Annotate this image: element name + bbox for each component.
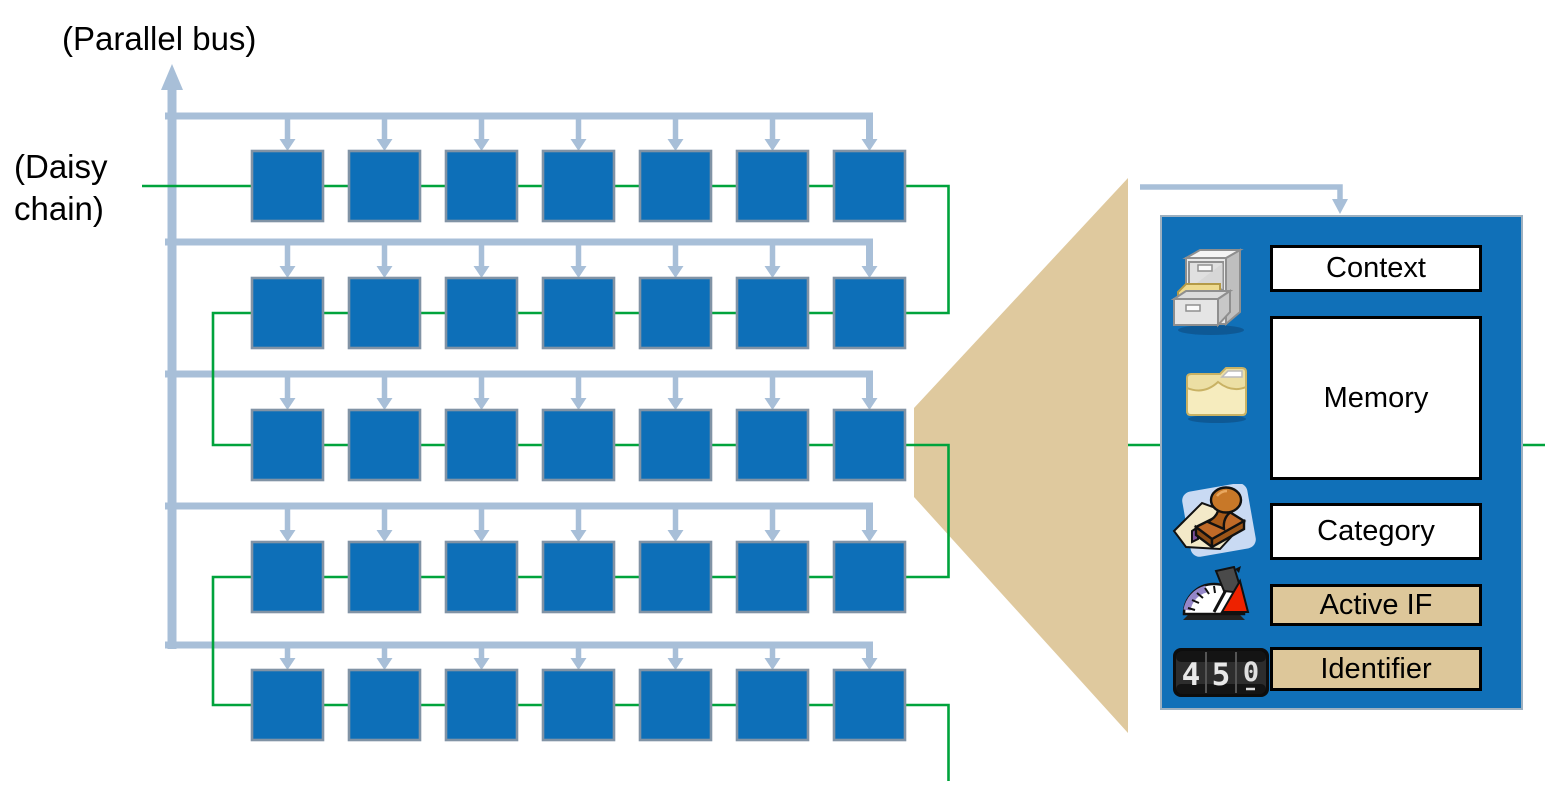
bus-rail	[165, 645, 870, 659]
bus-arrowhead	[862, 266, 878, 278]
node-detail-panel: 4 5 0 Context Memory Category Active IF …	[1160, 215, 1523, 710]
node-square	[543, 670, 614, 740]
node-square	[349, 151, 420, 221]
counter-digit-1: 4	[1182, 657, 1201, 693]
node-square	[737, 278, 808, 348]
node-square	[349, 278, 420, 348]
node-square	[446, 542, 517, 612]
bus-arrowhead	[377, 139, 393, 151]
node-square	[446, 410, 517, 480]
bus-arrowhead	[377, 266, 393, 278]
node-square	[737, 151, 808, 221]
node-square	[737, 542, 808, 612]
node-square	[349, 410, 420, 480]
node-square	[834, 278, 905, 348]
bus-arrowhead	[668, 398, 684, 410]
bus-arrowhead	[765, 530, 781, 542]
node-square	[834, 151, 905, 221]
memory-label: Memory	[1324, 382, 1429, 415]
node-square	[446, 278, 517, 348]
node-square	[640, 278, 711, 348]
folder-icon	[1183, 364, 1251, 424]
context-label: Context	[1326, 252, 1426, 285]
node-square	[252, 410, 323, 480]
node-square	[446, 670, 517, 740]
counter-icon: 4 5 0	[1172, 645, 1270, 700]
counter-digit-3: 0	[1243, 657, 1259, 688]
bus-arrowhead	[474, 266, 490, 278]
bus-rail	[165, 374, 870, 399]
category-box: Category	[1270, 503, 1482, 560]
bus-arrowhead	[862, 139, 878, 151]
node-square	[252, 278, 323, 348]
bus-arrowhead	[765, 139, 781, 151]
node-square	[543, 151, 614, 221]
bus-arrowhead	[280, 139, 296, 151]
active-if-label: Active IF	[1320, 589, 1433, 622]
bus-arrowhead	[280, 398, 296, 410]
identifier-box: Identifier	[1270, 647, 1482, 691]
node-square	[349, 542, 420, 612]
panel-feed-arrowhead	[1332, 199, 1348, 214]
memory-box: Memory	[1270, 316, 1482, 480]
node-square	[640, 410, 711, 480]
bus-arrowhead	[377, 658, 393, 670]
bus-rail	[165, 506, 870, 531]
file-cabinet-icon	[1171, 242, 1251, 336]
diagram-stage: (Parallel bus) (Daisy chain)	[0, 0, 1545, 786]
daisy-chain-label-line1: (Daisy	[14, 148, 108, 185]
stamp-icon	[1167, 484, 1269, 570]
node-square	[543, 278, 614, 348]
node-square	[737, 410, 808, 480]
bus-arrowhead	[571, 139, 587, 151]
bus-arrowhead	[765, 658, 781, 670]
node-square	[252, 542, 323, 612]
node-square	[834, 670, 905, 740]
bus-arrowhead	[377, 530, 393, 542]
zoom-cone	[914, 178, 1128, 733]
category-label: Category	[1317, 515, 1435, 548]
bus-arrowhead	[280, 530, 296, 542]
bus-arrowhead	[377, 398, 393, 410]
parallel-bus-trunk-arrowhead	[161, 64, 183, 90]
bus-arrowhead	[474, 398, 490, 410]
node-square	[834, 542, 905, 612]
bus-rail	[165, 116, 870, 140]
bus-arrowhead	[280, 266, 296, 278]
node-square	[640, 542, 711, 612]
node-square	[252, 670, 323, 740]
bus-arrowhead	[571, 266, 587, 278]
bus-arrowhead	[571, 658, 587, 670]
bus-arrowhead	[862, 658, 878, 670]
node-square	[349, 670, 420, 740]
bus-arrowhead	[765, 266, 781, 278]
node-square	[640, 670, 711, 740]
bus-arrowhead	[668, 139, 684, 151]
node-square	[737, 670, 808, 740]
identifier-label: Identifier	[1320, 653, 1431, 686]
counter-digit-2: 5	[1212, 657, 1231, 693]
panel-feed-arrow	[1140, 187, 1340, 200]
bus-arrowhead	[765, 398, 781, 410]
bus-arrowhead	[474, 658, 490, 670]
bus-arrowhead	[862, 530, 878, 542]
bus-arrowhead	[668, 530, 684, 542]
node-square	[834, 410, 905, 480]
active-if-box: Active IF	[1270, 584, 1482, 626]
parallel-bus-label: (Parallel bus)	[62, 18, 256, 60]
bus-arrowhead	[474, 530, 490, 542]
bus-arrowhead	[668, 658, 684, 670]
bus-rail	[165, 242, 870, 267]
gauge-icon	[1175, 566, 1253, 627]
node-square	[446, 151, 517, 221]
node-square	[543, 542, 614, 612]
daisy-chain-label: (Daisy chain)	[14, 146, 108, 230]
node-square	[543, 410, 614, 480]
daisy-chain-label-line2: chain)	[14, 190, 104, 227]
bus-arrowhead	[862, 398, 878, 410]
context-box: Context	[1270, 245, 1482, 292]
bus-arrowhead	[280, 658, 296, 670]
bus-arrowhead	[474, 139, 490, 151]
bus-arrowhead	[571, 530, 587, 542]
node-square	[640, 151, 711, 221]
bus-arrowhead	[668, 266, 684, 278]
node-square	[252, 151, 323, 221]
parallel-bus-label-text: (Parallel bus)	[62, 20, 256, 57]
bus-arrowhead	[571, 398, 587, 410]
